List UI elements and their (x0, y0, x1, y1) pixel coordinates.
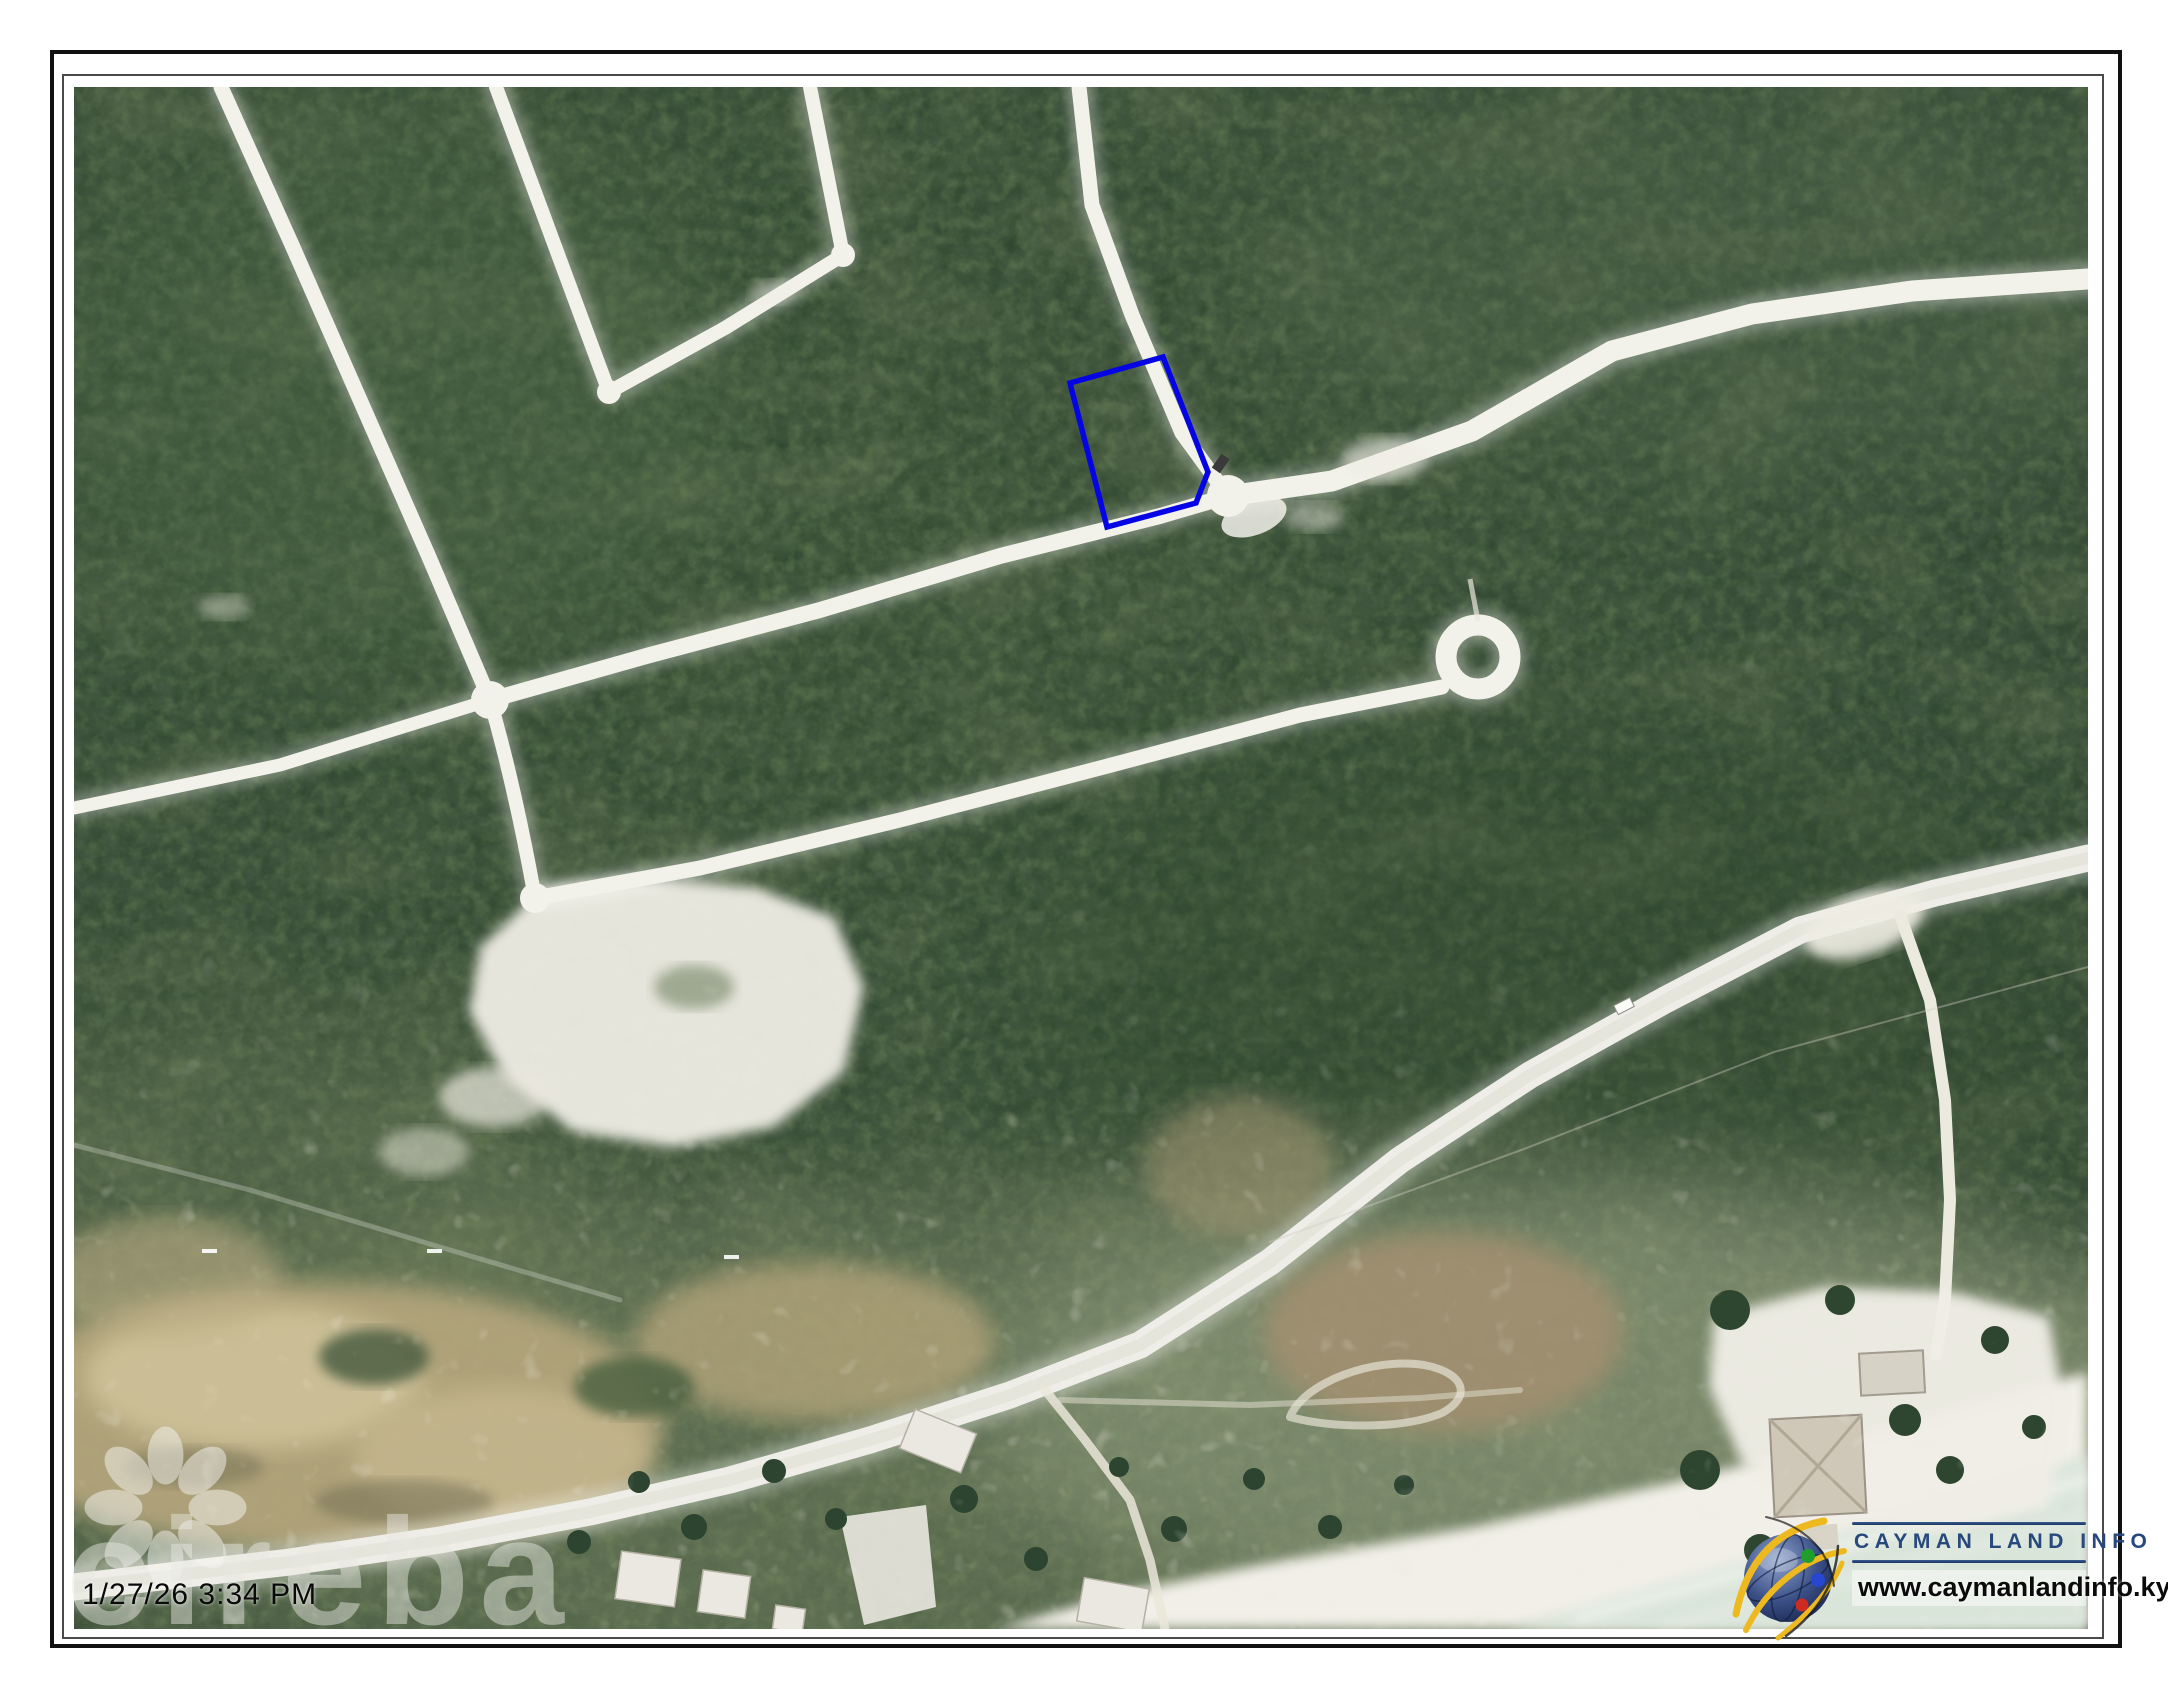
printed-map-page: cireba 1/27/26 3:34 PM (0, 0, 2168, 1700)
cayman-land-info-logo: CAYMAN LAND INFO www.caymanlandinfo.ky (1728, 1506, 2088, 1646)
aerial-photo (74, 87, 2088, 1629)
logo-rule-bottom (1852, 1560, 2086, 1563)
cireba-watermark: cireba (66, 1496, 574, 1648)
timestamp: 1/27/26 3:34 PM (82, 1578, 317, 1612)
logo-title: CAYMAN LAND INFO (1852, 1525, 2086, 1560)
logo-url: www.caymanlandinfo.ky (1852, 1570, 2086, 1606)
sand-speckle-texture (74, 87, 2088, 1629)
globe-swoosh-icon (1728, 1508, 1852, 1649)
